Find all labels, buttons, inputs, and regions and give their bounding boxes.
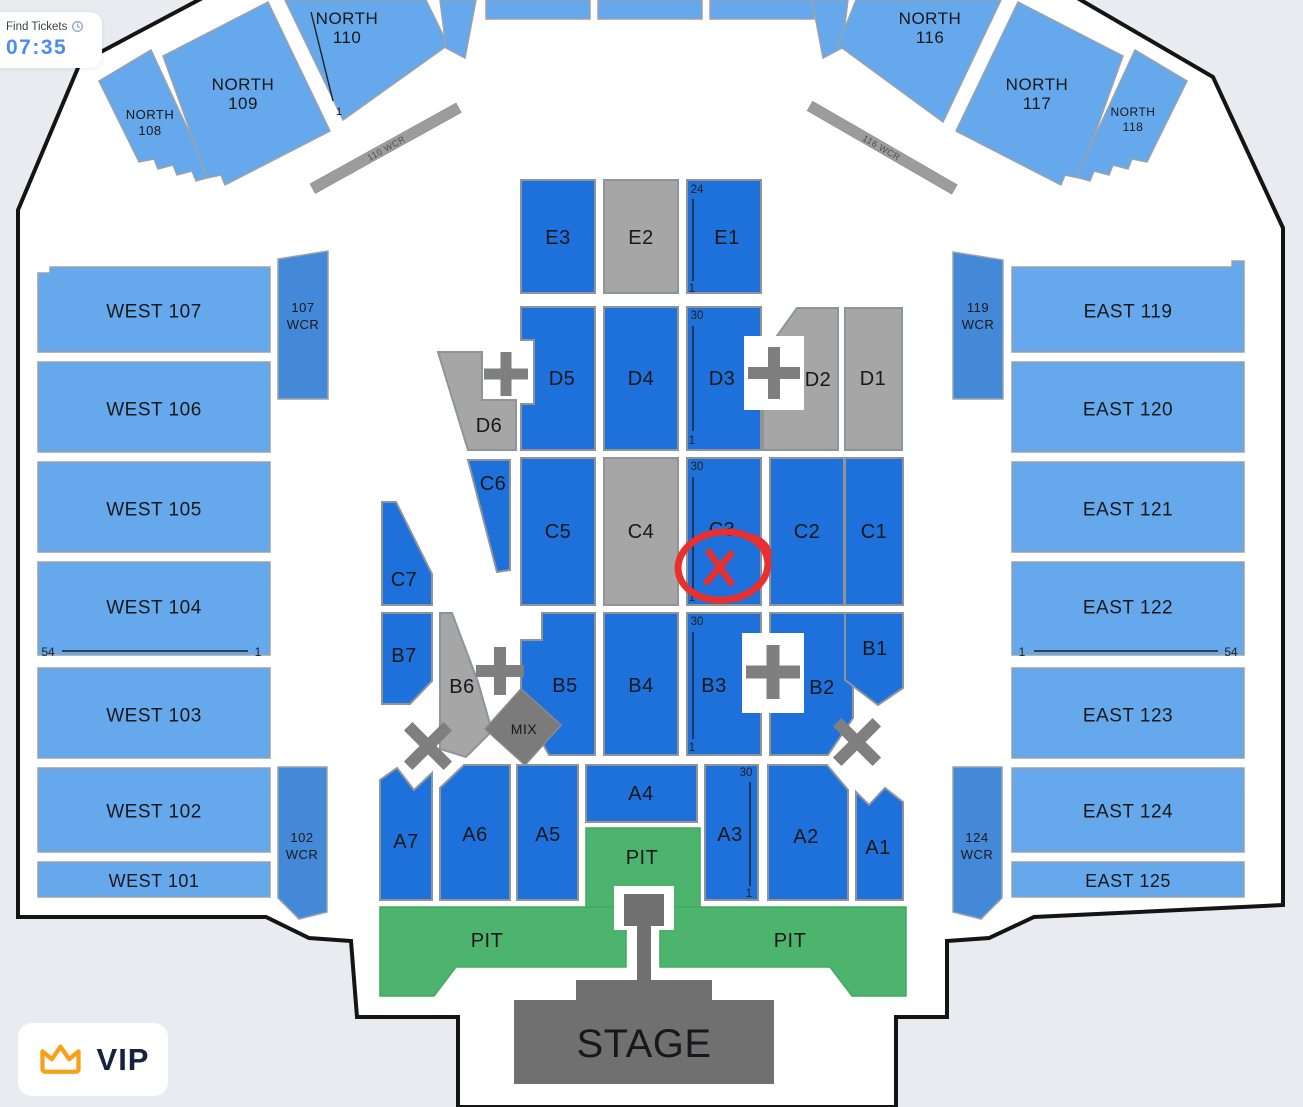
vip-label: VIP [97,1042,150,1078]
section-label: A5 [535,824,560,846]
section-label: WEST 107 [106,302,202,323]
section-north-partial-113[interactable] [598,0,702,19]
section-a6[interactable]: A6 [440,765,510,900]
section-label: C7 [391,569,418,591]
row-number-bottom: 1 [689,742,695,754]
section-north-partial-114[interactable] [710,0,814,19]
section-north-partial-112[interactable] [486,0,590,19]
section-east-wcr-124[interactable]: 124WCR [953,767,1002,919]
section-e1[interactable]: E1 24 1 [687,180,761,295]
section-d1: D1 [845,308,902,450]
section-west-107[interactable]: WEST 107 [38,267,270,352]
section-label: A3 [717,824,742,846]
section-label: A2 [793,826,818,848]
section-label: B5 [552,675,577,697]
section-b4[interactable]: B4 [604,613,678,755]
section-label: EAST 119 [1084,302,1173,323]
section-label: A7 [393,831,418,853]
find-tickets-label: Find Tickets [6,21,67,33]
seat-number-left: 54 [41,645,55,659]
section-west-105[interactable]: WEST 105 [38,462,270,552]
section-label: EAST 123 [1083,706,1173,727]
section-a4[interactable]: A4 [586,765,697,822]
section-label: C5 [545,521,572,543]
section-e2: E2 [604,180,678,293]
section-label: WEST 103 [106,706,202,727]
stage-label: STAGE [576,1022,711,1066]
section-west-wcr-107[interactable]: 107WCR [278,251,328,399]
section-west-101[interactable]: WEST 101 [38,862,270,897]
section-d4[interactable]: D4 [604,307,678,450]
section-label: EAST 125 [1085,871,1171,891]
seat-map: NORTH108 NORTH109 NORTH110 1 NORTH116 NO… [0,0,1303,1107]
section-c2[interactable]: C2 [770,458,844,605]
section-label: EAST 124 [1083,802,1173,823]
section-label: C1 [861,521,888,543]
seat-number-right: 54 [1224,645,1238,659]
timer-clock-icon [71,20,84,33]
section-west-wcr-102[interactable]: 102WCR [278,767,327,919]
section-label: E2 [628,227,653,249]
section-label: C4 [628,521,655,543]
row-number-top: 30 [691,461,704,473]
section-west-104[interactable]: WEST 104 54 1 [38,562,270,659]
section-a1[interactable]: A1 [856,788,903,900]
section-label: PIT [471,930,504,952]
section-east-124[interactable]: EAST 124 [1012,768,1244,852]
section-label: WEST 101 [109,871,200,891]
section-a7[interactable]: A7 [380,768,432,900]
section-label: E1 [714,227,739,249]
camera-riser [624,894,664,926]
section-label: EAST 120 [1083,400,1173,421]
section-label: B7 [391,645,416,667]
section-label: D5 [549,368,576,390]
section-east-119[interactable]: EAST 119 [1012,261,1244,352]
section-east-120[interactable]: EAST 120 [1012,362,1244,452]
section-label: WEST 104 [106,598,202,619]
vip-badge[interactable]: VIP [18,1023,168,1096]
section-label: D6 [476,415,503,437]
section-west-102[interactable]: WEST 102 [38,768,270,852]
section-label: C2 [794,521,821,543]
stage-thrust [576,980,712,1002]
row-number-bottom: 1 [689,435,695,447]
section-c4: C4 [604,458,678,605]
section-east-125[interactable]: EAST 125 [1012,862,1244,897]
find-tickets-badge[interactable]: Find Tickets 07:35 [0,12,102,68]
section-label: WEST 106 [106,400,202,421]
section-a2[interactable]: A2 [768,765,848,900]
section-label: E3 [545,227,570,249]
row-number: 1 [336,106,342,118]
section-c5[interactable]: C5 [521,458,595,605]
row-number-top: 30 [740,767,753,779]
section-e3[interactable]: E3 [521,180,595,293]
row-number-bottom: 1 [689,283,695,295]
section-label: B6 [449,676,474,698]
section-label: A4 [628,783,653,805]
section-label: D4 [628,368,655,390]
section-c1[interactable]: C1 [845,458,903,605]
section-a3[interactable]: A3 30 1 [705,765,758,900]
section-west-103[interactable]: WEST 103 [38,668,270,758]
catwalk [637,924,651,984]
section-label: B2 [809,677,834,699]
section-label: D2 [805,369,832,391]
section-label: D1 [860,368,887,390]
section-east-122[interactable]: EAST 122 1 54 [1012,562,1244,659]
section-east-121[interactable]: EAST 121 [1012,462,1244,552]
section-label: WEST 102 [106,802,202,823]
section-label: A6 [462,824,487,846]
section-label: EAST 121 [1083,500,1173,521]
section-label: EAST 122 [1083,598,1173,619]
section-a5[interactable]: A5 [517,765,578,900]
section-label: PIT [774,930,807,952]
countdown-timer: 07:35 [6,36,98,60]
section-east-wcr-119[interactable]: 119WCR [953,252,1003,399]
row-number-top: 24 [691,184,704,196]
section-label: A1 [865,837,890,859]
mix-label: MIX [511,721,538,737]
section-east-123[interactable]: EAST 123 [1012,668,1244,758]
row-number-top: 30 [691,616,704,628]
row-number-bottom: 1 [746,888,752,900]
section-label: B3 [701,675,726,697]
section-label: C6 [480,473,507,495]
section-label: WEST 105 [106,500,202,521]
section-label: B4 [628,675,653,697]
seat-number-right: 1 [255,645,262,659]
section-west-106[interactable]: WEST 106 [38,362,270,452]
seat-number-left: 1 [1019,645,1026,659]
section-label: D3 [709,368,736,390]
section-label: PIT [626,847,659,869]
section-label: B1 [862,638,887,660]
row-number-top: 30 [691,310,704,322]
crown-icon [37,1041,84,1079]
